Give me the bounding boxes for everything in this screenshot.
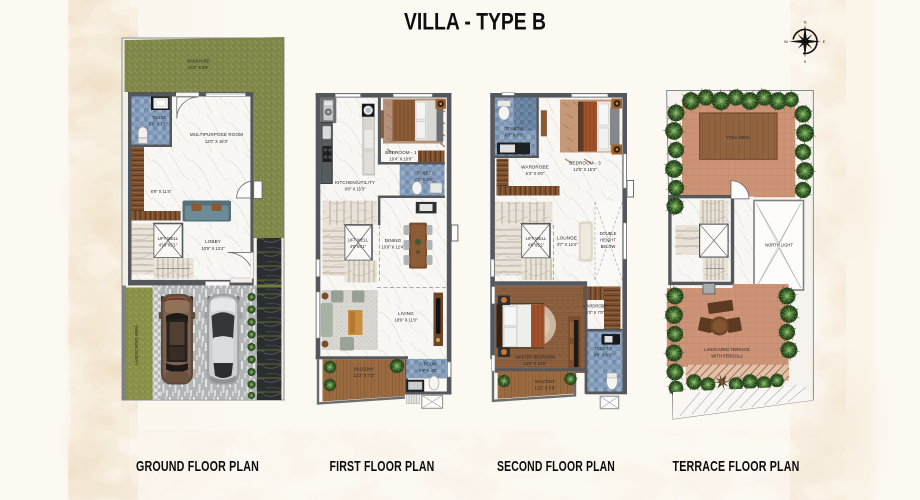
svg-text:6'0" X 8'9": 6'0" X 8'9" (505, 133, 524, 138)
svg-text:10'9" X 12'4": 10'9" X 12'4" (201, 246, 225, 251)
svg-text:MULTIPURPOSE ROOM: MULTIPURPOSE ROOM (190, 132, 243, 137)
svg-text:LOBBY: LOBBY (205, 239, 221, 244)
svg-text:DINING: DINING (385, 238, 402, 243)
svg-text:4'8"X5'1": 4'8"X5'1" (528, 243, 545, 248)
svg-text:6'0" X 7'0": 6'0" X 7'0" (586, 310, 605, 315)
svg-text:10'4" X 10'0": 10'4" X 10'0" (389, 157, 413, 162)
svg-text:FIRST FLOOR PLAN: FIRST FLOOR PLAN (330, 458, 435, 475)
svg-text:6'9" X 11'4": 6'9" X 11'4" (151, 189, 172, 194)
svg-text:VILLA - TYPE B: VILLA - TYPE B (404, 9, 546, 36)
svg-text:4'8"X5'1": 4'8"X5'1" (350, 244, 367, 249)
svg-text:12'2" X 7'2": 12'2" X 7'2" (354, 373, 375, 378)
svg-text:E: E (823, 39, 826, 44)
svg-text:YOGA DECK: YOGA DECK (726, 135, 750, 140)
svg-text:LANSCAPED TERRACE: LANSCAPED TERRACE (704, 347, 750, 352)
svg-text:6'0" X 4'3": 6'0" X 4'3" (419, 368, 438, 373)
svg-text:BELOW: BELOW (601, 244, 616, 249)
svg-text:LIFT WELL: LIFT WELL (348, 238, 369, 243)
svg-text:BEDROOM - 3: BEDROOM - 3 (569, 161, 601, 166)
svg-text:HEIGHT: HEIGHT (600, 238, 616, 243)
svg-text:4'10"X5'1": 4'10"X5'1" (159, 243, 178, 248)
svg-text:LIFT WELL: LIFT WELL (526, 236, 547, 241)
svg-text:LOUNGE: LOUNGE (557, 236, 577, 241)
svg-text:BALCONY: BALCONY (354, 367, 374, 372)
svg-text:P. ROOM: P. ROOM (419, 362, 437, 367)
svg-text:S: S (804, 59, 807, 64)
svg-text:SECOND FLOOR PLAN: SECOND FLOOR PLAN (497, 458, 615, 475)
svg-text:BEDROOM - 1: BEDROOM - 1 (385, 150, 417, 155)
svg-text:6'3" X 6'0": 6'3" X 6'0" (526, 171, 545, 176)
svg-text:TOILET: TOILET (417, 171, 432, 176)
svg-text:LIFT WELL: LIFT WELL (158, 236, 179, 241)
svg-text:W: W (784, 39, 788, 44)
svg-text:DOUBLE: DOUBLE (600, 231, 617, 236)
svg-text:MASTER BEDROOM: MASTER BEDROOM (515, 355, 555, 360)
svg-text:18'9" X 11'0": 18'9" X 11'0" (395, 318, 418, 323)
svg-text:TOILET-3: TOILET-3 (505, 126, 523, 131)
svg-text:6'5" X 7'1": 6'5" X 7'1" (149, 122, 168, 127)
svg-text:6'0" X 8'9": 6'0" X 8'9" (594, 353, 613, 358)
svg-text:NORTH LIGHT: NORTH LIGHT (765, 243, 793, 248)
svg-text:BALCONY: BALCONY (535, 379, 555, 384)
svg-text:TERRACE FLOOR PLAN: TERRACE FLOOR PLAN (673, 458, 800, 475)
svg-text:10'9" X 12'4": 10'9" X 12'4" (381, 245, 405, 250)
svg-text:GROUND FLOOR PLAN: GROUND FLOOR PLAN (136, 458, 259, 475)
svg-text:WARDROBE: WARDROBE (521, 165, 549, 170)
svg-text:LIVING: LIVING (398, 311, 414, 316)
svg-text:TOILET-2: TOILET-2 (594, 346, 612, 351)
svg-text:8'0" X 15'3": 8'0" X 15'3" (345, 187, 366, 192)
svg-text:12'6" X 15'3": 12'6" X 15'3" (573, 167, 597, 172)
svg-text:TOILET: TOILET (152, 115, 167, 120)
svg-text:12'2" X 5'8": 12'2" X 5'8" (535, 386, 556, 391)
svg-text:WITH PERGOLA: WITH PERGOLA (711, 354, 743, 359)
svg-text:24'3" X 8'9": 24'3" X 8'9" (188, 65, 209, 70)
svg-text:BACKYARD: BACKYARD (187, 59, 209, 64)
svg-text:N: N (804, 20, 807, 25)
svg-text:12'0" X 15'3": 12'0" X 15'3" (205, 139, 229, 144)
svg-text:12'6" X 12'6": 12'6" X 12'6" (523, 361, 547, 366)
svg-text:4'7" X 12'4": 4'7" X 12'4" (557, 242, 578, 247)
svg-text:KITCHEN/UTILITY: KITCHEN/UTILITY (335, 180, 375, 185)
svg-text:LANDSCAPED AREA: LANDSCAPED AREA (134, 325, 139, 365)
